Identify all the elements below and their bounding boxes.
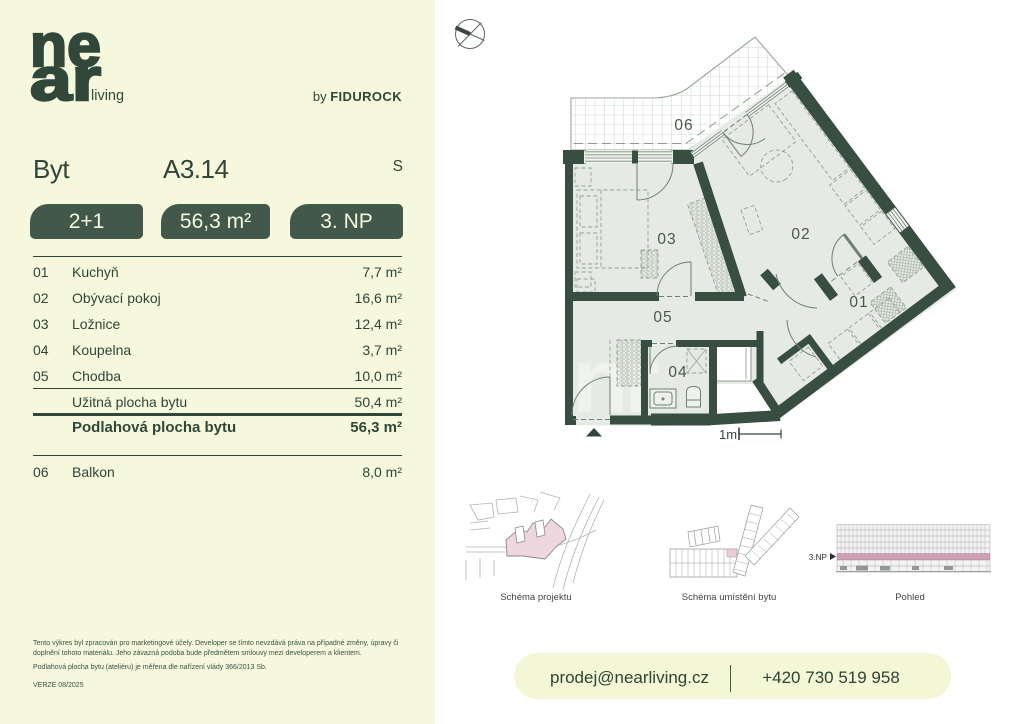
svg-text:03: 03	[657, 231, 676, 248]
svg-text:02: 02	[791, 226, 810, 243]
svg-text:04: 04	[668, 364, 687, 381]
svg-text:1m: 1m	[719, 427, 737, 442]
svg-text:3.NP: 3.NP	[809, 553, 828, 562]
svg-text:05: 05	[653, 309, 672, 326]
svg-text:06: 06	[674, 117, 693, 134]
svg-text:01: 01	[849, 294, 868, 311]
